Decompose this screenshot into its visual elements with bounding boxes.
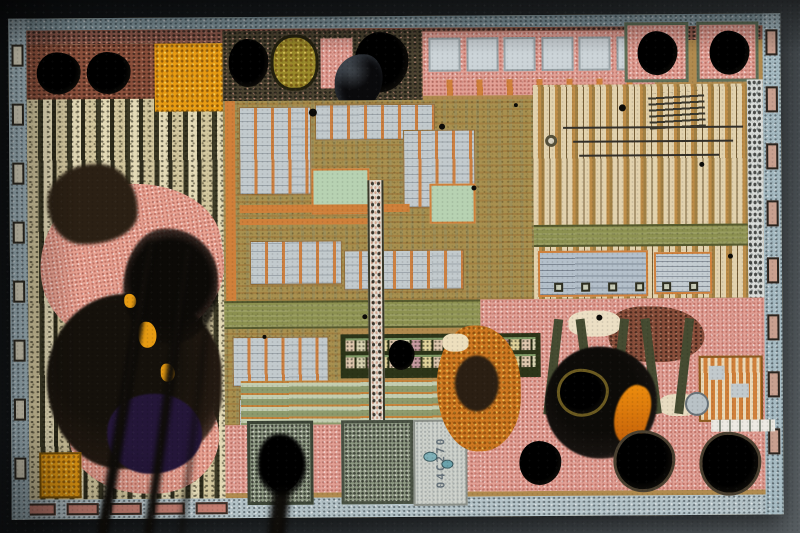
probe-mark-circle (685, 392, 709, 416)
standard-cell-array (239, 107, 312, 196)
bond-pad-black (519, 441, 561, 485)
bond-pad (13, 222, 25, 244)
via-contact (581, 283, 590, 292)
via-contact (608, 282, 617, 291)
right-edge-pad-row (762, 13, 783, 514)
ic-die: 04C270 (8, 13, 783, 519)
wire-staircase (648, 90, 706, 129)
bond-pad (12, 163, 24, 185)
long-metal-wire (573, 140, 733, 143)
bond-pad (153, 502, 185, 514)
gold-corrosion-blob (436, 325, 521, 452)
bond-pad (767, 257, 779, 283)
long-metal-wire (579, 154, 719, 157)
analog-block (429, 183, 475, 223)
bond-pad (14, 340, 26, 362)
burnt-residue-blob (47, 164, 138, 245)
standard-cell-array (344, 250, 464, 291)
mottled-pad-block (341, 420, 414, 505)
bond-pad-black (613, 430, 675, 492)
bond-pad (11, 45, 23, 67)
debris-dot (309, 109, 317, 117)
bond-pad (768, 371, 780, 397)
bond-pad (766, 143, 778, 169)
bond-pad (196, 502, 228, 514)
cream-patch (442, 333, 468, 351)
debris-dot (439, 124, 445, 130)
debris-dot (262, 335, 266, 339)
bond-pad-black (709, 31, 749, 75)
via-contact (635, 282, 644, 291)
bond-pad (767, 314, 779, 340)
capacitor-plate (504, 37, 536, 71)
logic-block-right (533, 84, 748, 299)
output-driver-block (699, 355, 763, 421)
seal-ring-right (762, 13, 783, 514)
capacitor-plate (466, 37, 498, 71)
bond-pad-frame (696, 21, 758, 81)
bond-pad (14, 399, 26, 421)
central-speckled-bus (367, 180, 385, 434)
bond-pad (766, 86, 778, 112)
capacitor-plate (428, 38, 460, 72)
bond-pad-black (228, 39, 268, 87)
bond-pad (768, 428, 780, 454)
bond-pad (14, 458, 26, 480)
debris-dot (619, 104, 626, 111)
debris-dot (728, 254, 733, 259)
via-contact (689, 282, 698, 291)
bond-pad-black (699, 431, 761, 495)
bond-pad-frame (624, 22, 688, 82)
top-bond-pad-row (222, 30, 422, 101)
gold-pad-exposed (39, 452, 81, 498)
debris-dot (596, 315, 602, 321)
via-contact (662, 282, 671, 291)
alignment-circle (545, 135, 557, 147)
debris-dot (514, 103, 518, 107)
capacitor-plate (541, 37, 573, 71)
burnt-center (455, 355, 499, 411)
standard-cell-array (250, 240, 342, 285)
bond-wire-ball (258, 434, 306, 496)
power-rail (225, 101, 236, 301)
microscope-photo: 04C270 (0, 0, 800, 533)
corroded-bond-pad (270, 35, 318, 91)
bond-pad (765, 29, 777, 55)
cell (709, 366, 725, 380)
via-contact (554, 283, 563, 292)
bond-pad (110, 503, 142, 515)
bond-pad (12, 104, 24, 126)
capacitor-segments (428, 36, 648, 74)
debris-dot (471, 185, 476, 190)
solder-bump (441, 460, 453, 469)
bond-pad (767, 200, 779, 226)
solder-bump (423, 452, 437, 462)
bottom-edge-pad-row (12, 498, 228, 520)
cell (731, 384, 749, 398)
power-transistor-region (480, 297, 765, 491)
metal-bus (240, 204, 410, 213)
metal-bus (240, 218, 380, 225)
gold-corrosion-patch (154, 43, 222, 111)
standard-cell-array (232, 336, 328, 387)
capacitor-plate (579, 36, 611, 70)
bond-pad (13, 281, 25, 303)
bond-pad-black (637, 31, 677, 75)
contact-ladder (711, 419, 775, 431)
bus-band (534, 224, 748, 247)
debris-dot (362, 314, 367, 319)
via-contacts-row (554, 282, 698, 292)
bond-pad (67, 503, 99, 515)
debris-dot (699, 162, 704, 167)
capacitor-bank-row (422, 30, 654, 80)
